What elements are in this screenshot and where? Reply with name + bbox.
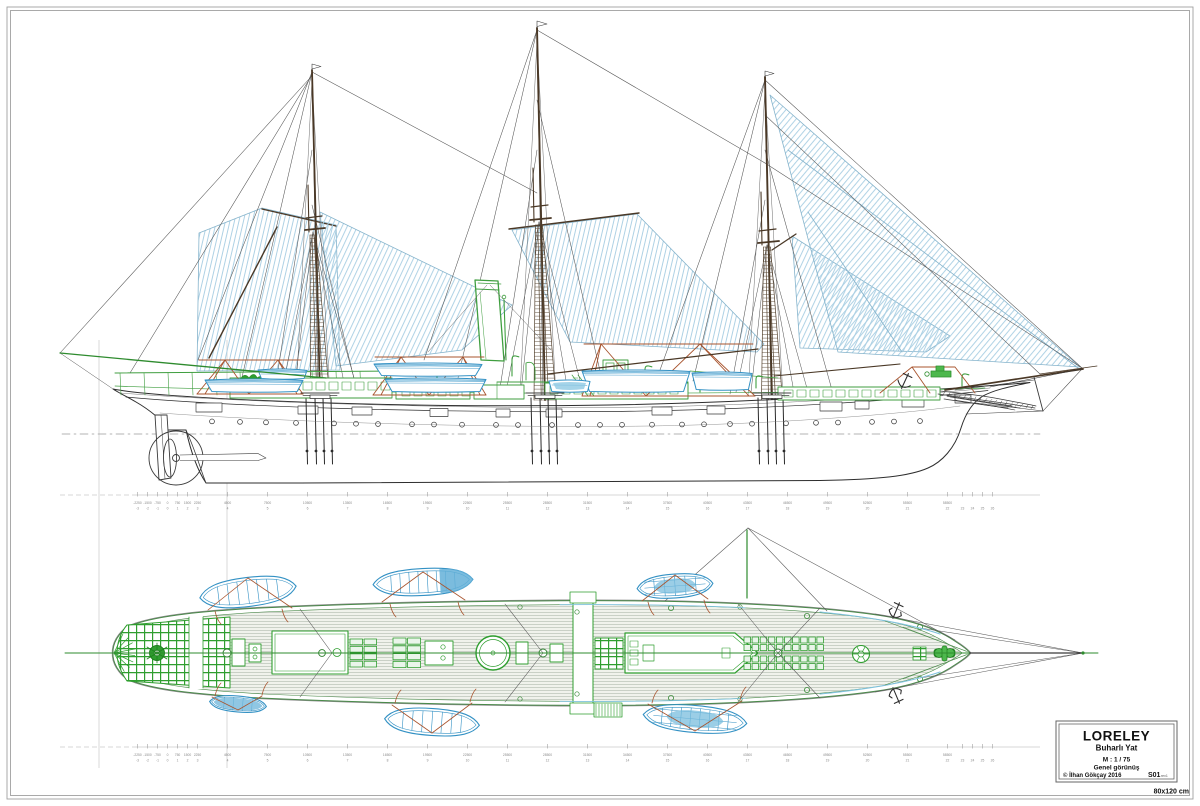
- svg-text:37500: 37500: [663, 753, 672, 757]
- svg-text:-1500: -1500: [143, 501, 152, 505]
- svg-text:25500: 25500: [503, 753, 512, 757]
- svg-text:5: 5: [267, 507, 269, 511]
- svg-text:55500: 55500: [903, 753, 912, 757]
- svg-text:46500: 46500: [783, 501, 792, 505]
- svg-text:2250: 2250: [194, 753, 202, 757]
- svg-text:4500: 4500: [224, 501, 232, 505]
- svg-text:1: 1: [177, 507, 179, 511]
- svg-text:© İlhan Gökçay 2016: © İlhan Gökçay 2016: [1063, 772, 1122, 779]
- svg-text:-3: -3: [136, 507, 139, 511]
- svg-text:19: 19: [826, 759, 830, 763]
- svg-text:22500: 22500: [463, 501, 472, 505]
- svg-text:8: 8: [387, 507, 389, 511]
- svg-text:10: 10: [466, 507, 470, 511]
- svg-text:43500: 43500: [743, 501, 752, 505]
- svg-text:22500: 22500: [463, 753, 472, 757]
- svg-text:17: 17: [746, 507, 750, 511]
- svg-text:52500: 52500: [863, 753, 872, 757]
- svg-text:55500: 55500: [903, 501, 912, 505]
- svg-text:12: 12: [546, 759, 550, 763]
- svg-text:19500: 19500: [423, 753, 432, 757]
- svg-text:3: 3: [197, 759, 199, 763]
- svg-text:20: 20: [866, 759, 870, 763]
- svg-text:2250: 2250: [194, 501, 202, 505]
- svg-text:6: 6: [307, 759, 309, 763]
- svg-text:19: 19: [826, 507, 830, 511]
- svg-text:16500: 16500: [383, 753, 392, 757]
- svg-text:-3: -3: [136, 759, 139, 763]
- svg-text:Buharlı Yat: Buharlı Yat: [1096, 744, 1138, 753]
- svg-text:17: 17: [746, 759, 750, 763]
- svg-text:25: 25: [981, 759, 985, 763]
- svg-text:24: 24: [971, 507, 975, 511]
- svg-text:5: 5: [267, 759, 269, 763]
- svg-text:18: 18: [786, 759, 790, 763]
- svg-text:2: 2: [187, 759, 189, 763]
- svg-text:-2250: -2250: [133, 501, 142, 505]
- svg-text:4: 4: [227, 507, 229, 511]
- svg-text:49500: 49500: [823, 501, 832, 505]
- svg-text:16: 16: [706, 507, 710, 511]
- svg-text:9: 9: [427, 759, 429, 763]
- svg-text:20: 20: [866, 507, 870, 511]
- svg-text:14: 14: [626, 507, 630, 511]
- svg-text:46500: 46500: [783, 753, 792, 757]
- svg-text:25: 25: [981, 507, 985, 511]
- svg-text:16: 16: [706, 759, 710, 763]
- svg-text:18: 18: [786, 507, 790, 511]
- svg-text:-2250: -2250: [133, 753, 142, 757]
- svg-text:58500: 58500: [943, 501, 952, 505]
- svg-text:Genel görünüş: Genel görünüş: [1094, 765, 1140, 772]
- svg-text:750: 750: [175, 501, 181, 505]
- svg-text:19500: 19500: [423, 501, 432, 505]
- svg-text:7: 7: [347, 759, 349, 763]
- svg-text:-750: -750: [154, 753, 161, 757]
- svg-text:28500: 28500: [543, 753, 552, 757]
- svg-text:6: 6: [307, 507, 309, 511]
- svg-text:31500: 31500: [583, 753, 592, 757]
- svg-text:24: 24: [971, 759, 975, 763]
- svg-text:7500: 7500: [264, 501, 272, 505]
- svg-text:25500: 25500: [503, 501, 512, 505]
- svg-text:0: 0: [167, 501, 169, 505]
- svg-text:-1: -1: [156, 507, 159, 511]
- svg-text:1500: 1500: [184, 753, 192, 757]
- svg-text:13: 13: [586, 759, 590, 763]
- svg-text:-2: -2: [146, 507, 149, 511]
- svg-text:14: 14: [626, 759, 630, 763]
- svg-text:11: 11: [506, 507, 510, 511]
- svg-text:58500: 58500: [943, 753, 952, 757]
- svg-text:34500: 34500: [623, 753, 632, 757]
- svg-text:22: 22: [946, 507, 950, 511]
- svg-text:S01: S01: [1148, 772, 1161, 779]
- svg-text:1500: 1500: [184, 501, 192, 505]
- svg-text:12: 12: [546, 507, 550, 511]
- svg-text:80x120 cm: 80x120 cm: [1154, 789, 1189, 796]
- svg-text:750: 750: [175, 753, 181, 757]
- svg-text:10: 10: [466, 759, 470, 763]
- svg-text:-2: -2: [146, 759, 149, 763]
- svg-text:9: 9: [427, 507, 429, 511]
- svg-text:-1500: -1500: [143, 753, 152, 757]
- svg-text:21: 21: [906, 759, 910, 763]
- svg-text:8: 8: [387, 759, 389, 763]
- svg-text:21: 21: [906, 507, 910, 511]
- svg-text:49500: 49500: [823, 753, 832, 757]
- svg-text:23: 23: [961, 759, 965, 763]
- svg-text:31500: 31500: [583, 501, 592, 505]
- svg-text:0: 0: [167, 507, 169, 511]
- svg-text:10500: 10500: [303, 753, 312, 757]
- svg-text:3: 3: [197, 507, 199, 511]
- svg-text:43500: 43500: [743, 753, 752, 757]
- svg-text:-1: -1: [156, 759, 159, 763]
- svg-text:16500: 16500: [383, 501, 392, 505]
- svg-text:13: 13: [586, 507, 590, 511]
- svg-text:13500: 13500: [343, 501, 352, 505]
- svg-text:34500: 34500: [623, 501, 632, 505]
- svg-text:40500: 40500: [703, 501, 712, 505]
- svg-text:1: 1: [177, 759, 179, 763]
- svg-text:26: 26: [991, 759, 995, 763]
- svg-text:52500: 52500: [863, 501, 872, 505]
- svg-text:15: 15: [666, 507, 670, 511]
- svg-text:28500: 28500: [543, 501, 552, 505]
- svg-text:23: 23: [961, 507, 965, 511]
- svg-text:7: 7: [347, 507, 349, 511]
- svg-text:4500: 4500: [224, 753, 232, 757]
- svg-text:0: 0: [167, 759, 169, 763]
- svg-text:11: 11: [506, 759, 510, 763]
- svg-text:0: 0: [167, 753, 169, 757]
- svg-text:10500: 10500: [303, 501, 312, 505]
- svg-text:-750: -750: [154, 501, 161, 505]
- svg-text:37500: 37500: [663, 501, 672, 505]
- svg-text:7500: 7500: [264, 753, 272, 757]
- svg-text:22: 22: [946, 759, 950, 763]
- svg-text:LORELEY: LORELEY: [1083, 729, 1150, 744]
- svg-text:4: 4: [227, 759, 229, 763]
- svg-text:2: 2: [187, 507, 189, 511]
- svg-text:15: 15: [666, 759, 670, 763]
- svg-text:26: 26: [991, 507, 995, 511]
- svg-text:rev1: rev1: [1161, 774, 1168, 778]
- svg-text:M : 1 / 75: M : 1 / 75: [1103, 757, 1131, 764]
- svg-text:40500: 40500: [703, 753, 712, 757]
- svg-text:13500: 13500: [343, 753, 352, 757]
